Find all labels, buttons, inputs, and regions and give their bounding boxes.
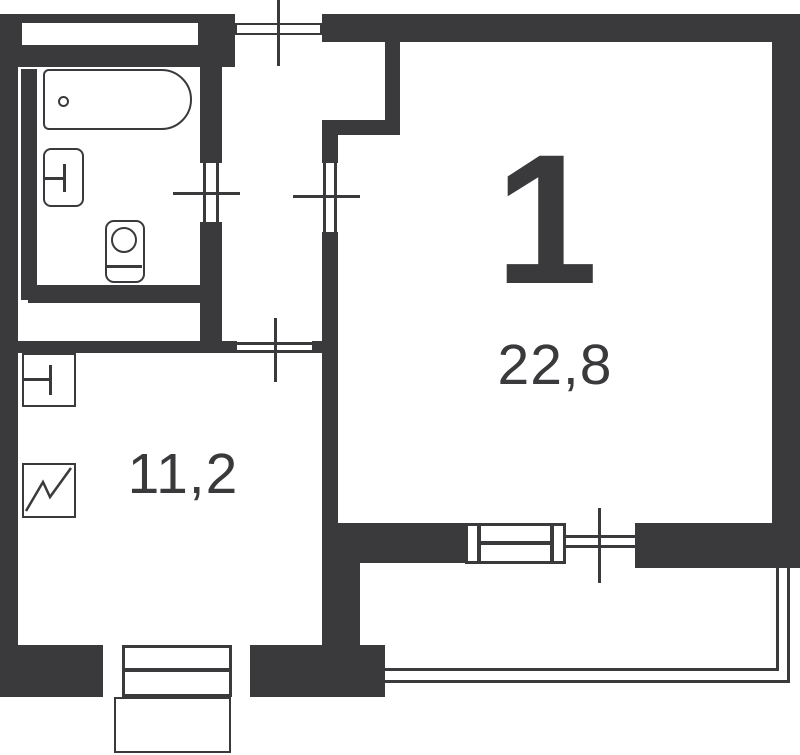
wall-top-right <box>322 14 800 42</box>
entrance-door-swing-line <box>277 0 280 66</box>
wall-bathroom-bottom <box>28 285 220 303</box>
balcony-parapet-line <box>776 568 779 671</box>
living-room-window-icon <box>465 523 566 564</box>
wall-kitchen-living-divider <box>322 562 360 645</box>
stove-icon <box>22 463 76 518</box>
kitchen-window-break <box>232 645 250 697</box>
balcony-parapet-line <box>385 680 790 683</box>
balcony-parapet-line <box>385 668 779 671</box>
wall-niche <box>22 23 198 45</box>
bathroom-door-swing-line <box>173 192 240 195</box>
window-sash-line <box>481 541 550 545</box>
washbasin-tap-line <box>45 177 65 180</box>
living-room-area-label: 22,8 <box>475 330 635 400</box>
kitchen-sink-tap-line <box>24 378 51 381</box>
wall-living-bottom-left <box>322 523 465 563</box>
kitchen-sink-tap-line <box>49 365 52 395</box>
washbasin-tap-line <box>63 164 66 192</box>
wall-bathroom-inner-left <box>21 69 37 300</box>
kitchen-window-break <box>103 645 122 697</box>
room-count-label: 1 <box>459 130 634 310</box>
toilet-icon <box>105 220 145 283</box>
wall-living-left-upper <box>322 135 338 163</box>
kitchen-window-icon <box>122 645 232 697</box>
window-sash-line <box>125 668 229 672</box>
wall-hallway-step <box>322 120 400 135</box>
wall-bathroom-right-upper <box>200 63 222 163</box>
wall-kitchen-top-stub <box>312 341 322 353</box>
kitchen-door-swing-line <box>274 318 277 382</box>
living-room-door-swing-line <box>293 195 360 198</box>
toilet-base-line <box>107 265 142 268</box>
kitchen-area-label: 11,2 <box>103 438 263 510</box>
wall-kitchen-top <box>18 341 237 353</box>
wall-right <box>772 14 800 568</box>
wall-left <box>0 14 18 697</box>
washbasin-icon <box>43 148 84 207</box>
wall-living-bottom-right <box>635 523 800 568</box>
floor-plan: 1 22,8 11,2 <box>0 0 800 755</box>
balcony-parapet-line <box>787 568 790 683</box>
window-mullion <box>550 526 554 561</box>
toilet-bowl-icon <box>111 227 137 253</box>
bathtub-icon <box>43 69 192 130</box>
porch-outline <box>114 697 231 753</box>
balcony-door-swing-line <box>598 508 601 583</box>
bathtub-drain-icon <box>58 96 69 107</box>
kitchen-sink-icon <box>22 353 76 407</box>
wall-living-left <box>322 232 338 563</box>
stove-zigzag-icon <box>24 465 73 515</box>
